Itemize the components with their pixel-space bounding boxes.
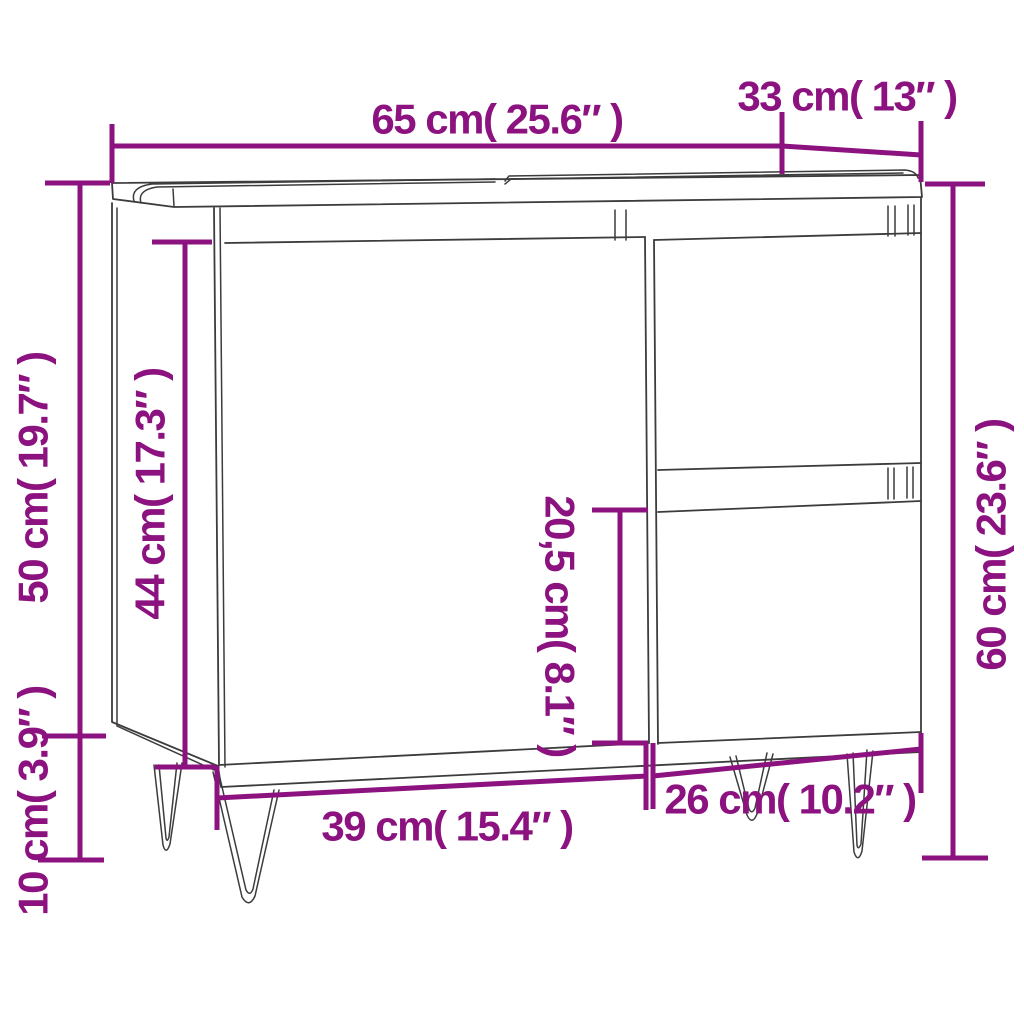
top-drawer-top-edge bbox=[654, 233, 921, 240]
bottom-drawer-handle-notch bbox=[888, 467, 913, 499]
top-drawer-bottom-edge bbox=[658, 463, 921, 470]
countertop bbox=[112, 170, 922, 207]
label-door-section-width: 39 cm( 15.4″ ) bbox=[321, 803, 572, 850]
label-overall-width: 65 cm( 25.6″ ) bbox=[371, 96, 622, 143]
door-right-edge bbox=[645, 237, 649, 743]
leg-rear-left-outer bbox=[154, 763, 182, 850]
dim-39-line bbox=[217, 776, 647, 798]
label-door-height: 44 cm( 17.3″ ) bbox=[127, 368, 174, 619]
label-leg-height: 10 cm( 3.9″ ) bbox=[10, 686, 57, 915]
dimension-lines bbox=[38, 112, 988, 860]
carcass bbox=[112, 197, 921, 787]
door-handle-notch bbox=[615, 210, 626, 240]
label-drawer-section-width: 26 cm( 10.2″ ) bbox=[664, 776, 915, 823]
countertop-outline bbox=[112, 175, 922, 207]
front-left-edge-inner bbox=[220, 208, 225, 767]
countertop-corner-seam bbox=[173, 189, 174, 206]
diagram-canvas: 65 cm( 25.6″ ) 33 cm( 13″ ) 50 cm( 19.7″… bbox=[0, 0, 1024, 1024]
top-drawer-handle-notch bbox=[888, 205, 914, 236]
leg-front-left bbox=[213, 772, 279, 903]
dim-33-line bbox=[782, 146, 921, 155]
door-top-edge bbox=[225, 237, 645, 243]
leg-rear-left bbox=[154, 763, 182, 850]
dimension-diagram: 65 cm( 25.6″ ) 33 cm( 13″ ) 50 cm( 19.7″… bbox=[0, 0, 1024, 1024]
bottom-drawer-top-edge bbox=[658, 501, 921, 512]
bottom-drawer-bottom-edge bbox=[658, 732, 921, 743]
label-depth: 33 cm( 13″ ) bbox=[737, 73, 956, 120]
label-drawer-front-height: 20,5 cm( 8.1″ ) bbox=[537, 495, 584, 756]
label-carcass-height: 50 cm( 19.7″ ) bbox=[10, 352, 57, 603]
door-bottom-edge bbox=[219, 743, 649, 765]
front-left-edge bbox=[214, 208, 219, 765]
dimension-labels: 65 cm( 25.6″ ) 33 cm( 13″ ) 50 cm( 19.7″… bbox=[10, 73, 1015, 916]
dim-drawer-front-height-line bbox=[592, 510, 648, 743]
label-overall-height: 60 cm( 23.6″ ) bbox=[968, 419, 1015, 670]
basin-left-rim-inner bbox=[140, 182, 495, 203]
drawer-left-edge bbox=[654, 240, 658, 744]
